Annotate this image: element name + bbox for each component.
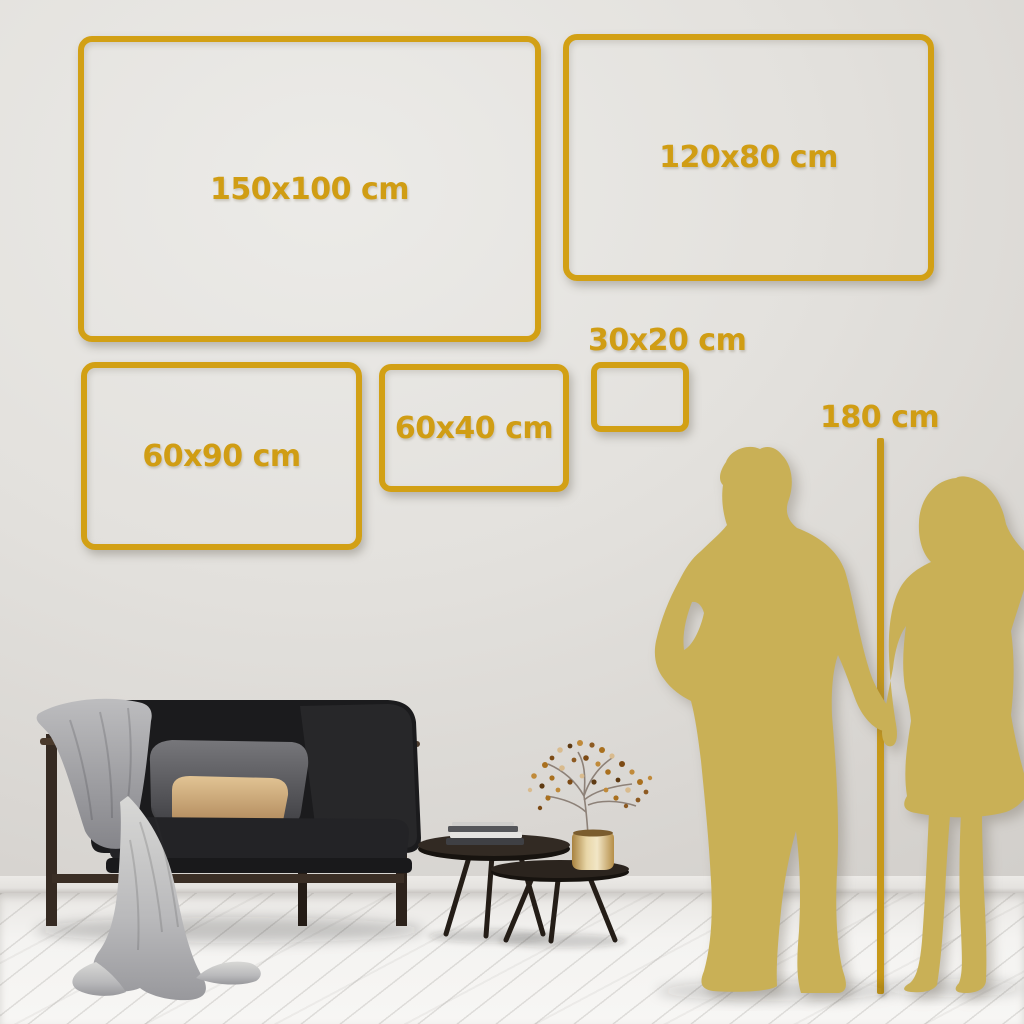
size-label-120x80: 120x80 cm [569,40,928,275]
height-reference-line [877,438,884,994]
sofa-arm-rail [40,738,128,745]
sofa-seat-front [106,858,412,873]
books-stack [446,822,524,845]
size-box-60x40: 60x40 cm [379,364,569,492]
sofa-gray-pillow [150,740,308,826]
sofa-seat-cushion [110,817,409,863]
sofa-inner-panel [300,704,417,848]
size-label-60x90: 60x90 cm [87,368,356,544]
wood-floor [0,893,1024,1024]
height-label: 180 cm [820,400,936,435]
sofa-back [90,700,421,853]
size-box-60x90: 60x90 cm [81,362,362,550]
canvas-size-guide-scene: 150x100 cm 120x80 cm 60x90 cm 60x40 cm 3… [0,0,1024,1024]
size-box-30x20 [591,362,689,432]
throw-blanket [37,699,152,849]
size-label-30x20: 30x20 cm [588,323,746,358]
sofa-arm-rail [386,741,420,747]
brass-vase [572,832,614,870]
size-label-150x100: 150x100 cm [84,42,535,336]
size-label-60x40: 60x40 cm [385,370,563,486]
woman-silhouette [882,476,1024,817]
baseboard [0,876,1024,893]
berry-plant [528,740,652,870]
vase-rim [573,830,613,837]
plant-berries [528,740,652,810]
sofa-tan-pillow [172,776,288,833]
size-box-150x100: 150x100 cm [78,36,541,342]
size-box-120x80: 120x80 cm [563,34,934,281]
